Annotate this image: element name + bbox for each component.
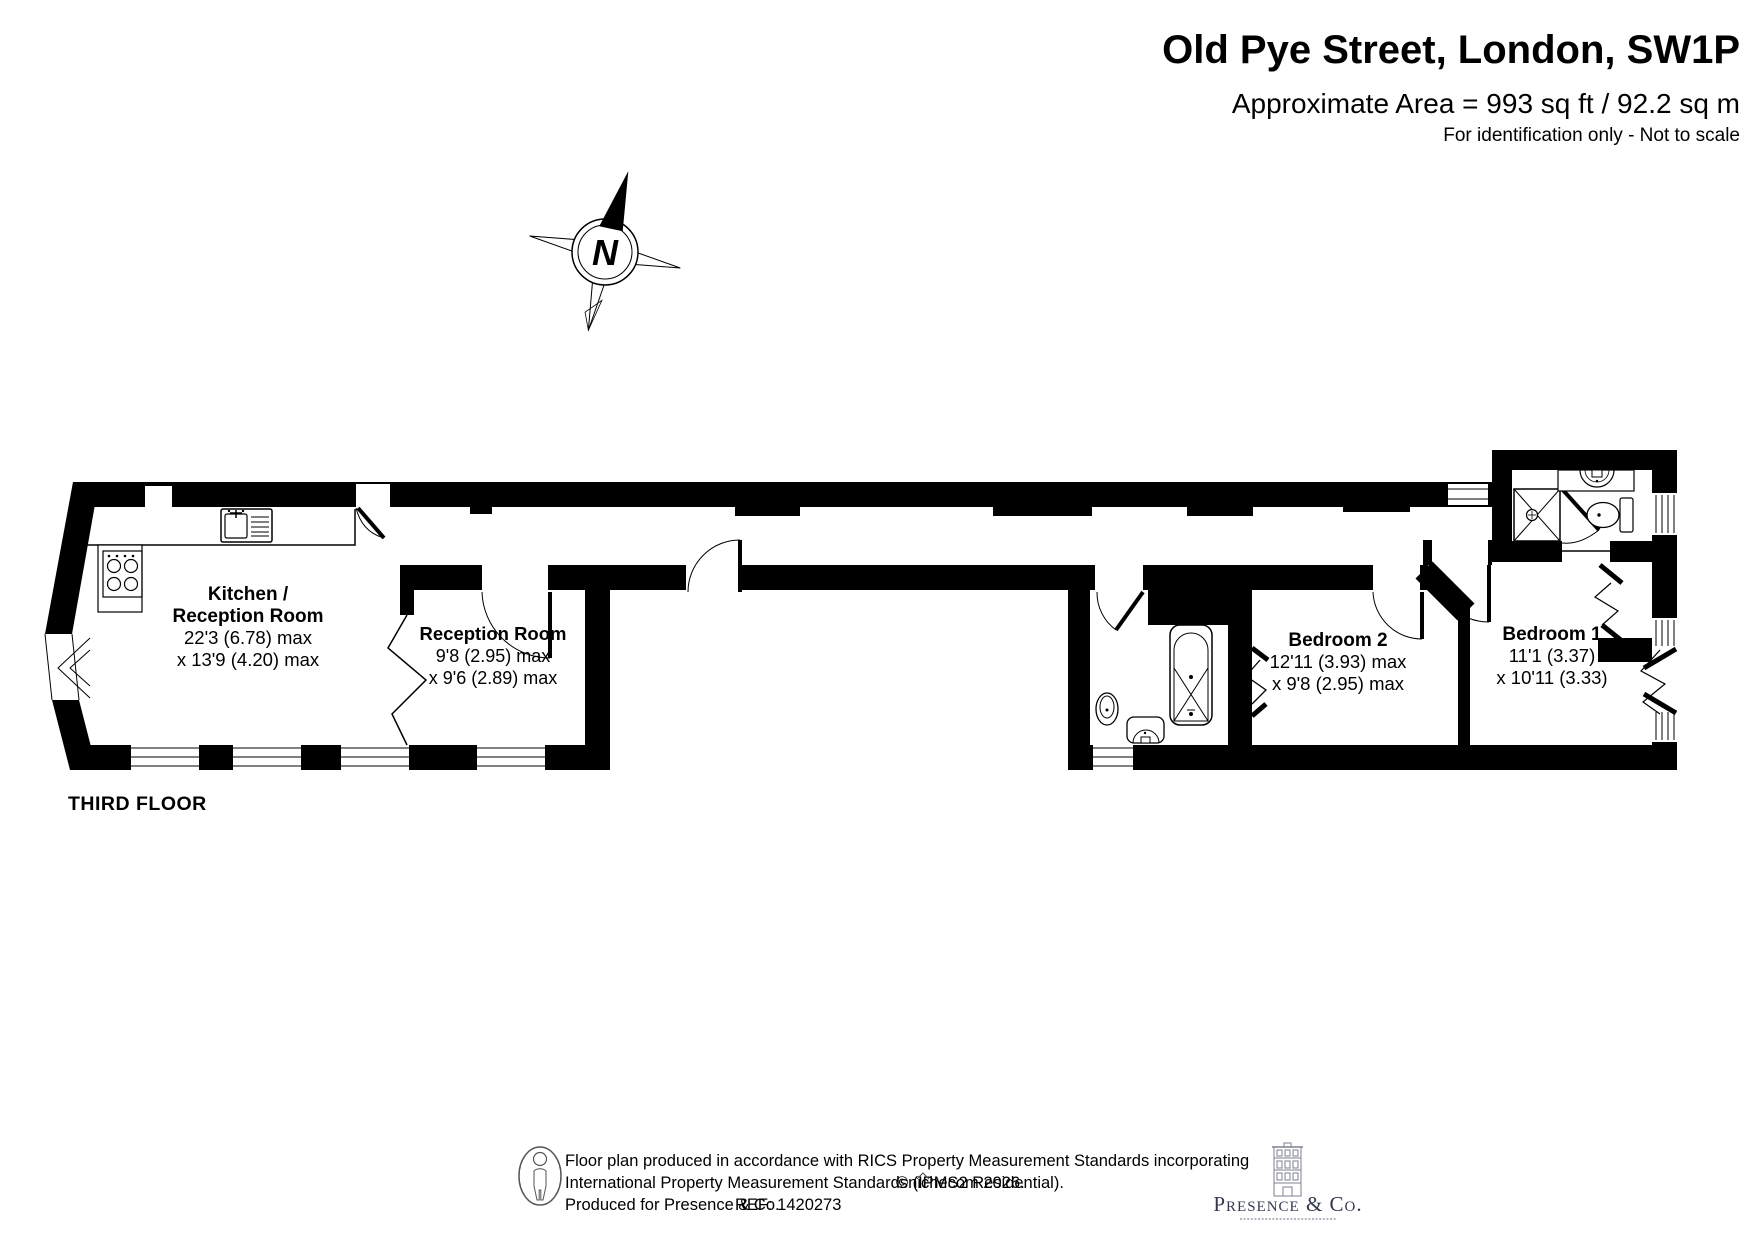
wall-bath-right — [1228, 590, 1252, 770]
wall-bottom-right — [1068, 745, 1677, 770]
window — [1093, 745, 1133, 770]
wall-reception-right — [585, 565, 610, 770]
window — [131, 745, 199, 770]
bedroom1-dims: x 10'11 (3.33) — [1496, 667, 1607, 688]
footer-ref: REF: 1420273 — [735, 1196, 841, 1214]
floorplan-page: Old Pye Street, London, SW1P Approximate… — [0, 0, 1755, 1241]
building-icon — [1272, 1143, 1303, 1196]
kitchen-dims: 22'3 (6.78) max — [184, 627, 313, 648]
toilet — [1096, 693, 1118, 725]
wall-left-upper — [45, 482, 99, 634]
bedroom2-dims: 12'11 (3.93) max — [1270, 651, 1408, 672]
kitchen-sink — [221, 509, 272, 542]
room-labels: Kitchen / Reception Room 22'3 (6.78) max… — [173, 584, 1608, 694]
floor-label: THIRD FLOOR — [68, 793, 207, 815]
wall-corridor — [1143, 565, 1373, 590]
wall-bath-left — [1068, 565, 1090, 770]
vanity-basin — [1558, 470, 1634, 491]
wall-corridor — [548, 565, 686, 590]
wall-corridor-end — [1423, 540, 1432, 565]
page-title: Old Pye Street, London, SW1P — [1162, 28, 1740, 72]
compass-icon: N — [513, 168, 682, 347]
window — [1448, 484, 1488, 505]
basin — [1127, 717, 1164, 743]
agency-name: Presence & Co. — [1213, 1192, 1362, 1216]
reception-dims: 9'8 (2.95) max — [436, 646, 551, 666]
wall-pier — [470, 482, 492, 514]
wall-corridor-end — [1488, 540, 1492, 565]
footer: Floor plan produced in accordance with R… — [519, 1147, 1249, 1214]
footer-line1: Floor plan produced in accordance with R… — [565, 1152, 1249, 1170]
bathroom-door — [1097, 592, 1143, 630]
bathtub — [1170, 625, 1212, 725]
window — [233, 745, 301, 770]
corner-nook — [1595, 565, 1652, 662]
window — [341, 745, 409, 770]
wall-bedroom-divider — [1458, 602, 1470, 770]
wall-pier — [1343, 482, 1410, 512]
ensuite-entrance-arrow — [1548, 545, 1612, 557]
kitchen-dims: x 13'9 (4.20) max — [177, 649, 320, 670]
window — [477, 745, 545, 770]
floorplan-svg: Old Pye Street, London, SW1P Approximate… — [0, 0, 1755, 1241]
wall-recess — [145, 486, 172, 507]
window — [1650, 493, 1677, 535]
open-archway — [388, 565, 426, 745]
person-scale-icon — [519, 1147, 561, 1205]
reception-dims: x 9'6 (2.89) max — [429, 668, 558, 688]
bedroom2-label: Bedroom 2 — [1288, 630, 1387, 651]
wall-pier — [993, 482, 1092, 516]
hallway-door — [688, 540, 740, 592]
wall-chamfer — [1424, 570, 1466, 612]
kitchen-label: Reception Room — [173, 606, 324, 627]
window — [1650, 618, 1677, 648]
hob — [98, 545, 142, 612]
bedroom1-dims: 11'1 (3.37) — [1509, 645, 1596, 666]
reception-label: Reception Room — [420, 623, 567, 644]
wall-ensuite-top — [1492, 450, 1677, 470]
bedroom1-label: Bedroom 1 — [1502, 624, 1602, 645]
area-line: Approximate Area = 993 sq ft / 92.2 sq m — [1232, 88, 1740, 119]
kitchen-label: Kitchen / — [208, 584, 289, 605]
footer-copyright: ©nichecom 2026. — [896, 1174, 1025, 1192]
wall-corridor — [738, 565, 1095, 590]
shower — [1514, 489, 1560, 541]
bedroom2-dims: x 9'8 (2.95) max — [1272, 673, 1405, 694]
kitchen-counter — [72, 509, 355, 545]
wall-pier — [1187, 482, 1253, 516]
wall-ensuite-bottom — [1610, 541, 1652, 562]
window — [45, 634, 90, 700]
entrance-door — [356, 484, 390, 538]
disclaimer-line: For identification only - Not to scale — [1443, 125, 1740, 146]
compass-north-label: N — [592, 232, 619, 273]
wall-pier — [735, 482, 800, 516]
wall-ensuite-left — [1492, 450, 1512, 562]
window — [1650, 710, 1677, 742]
